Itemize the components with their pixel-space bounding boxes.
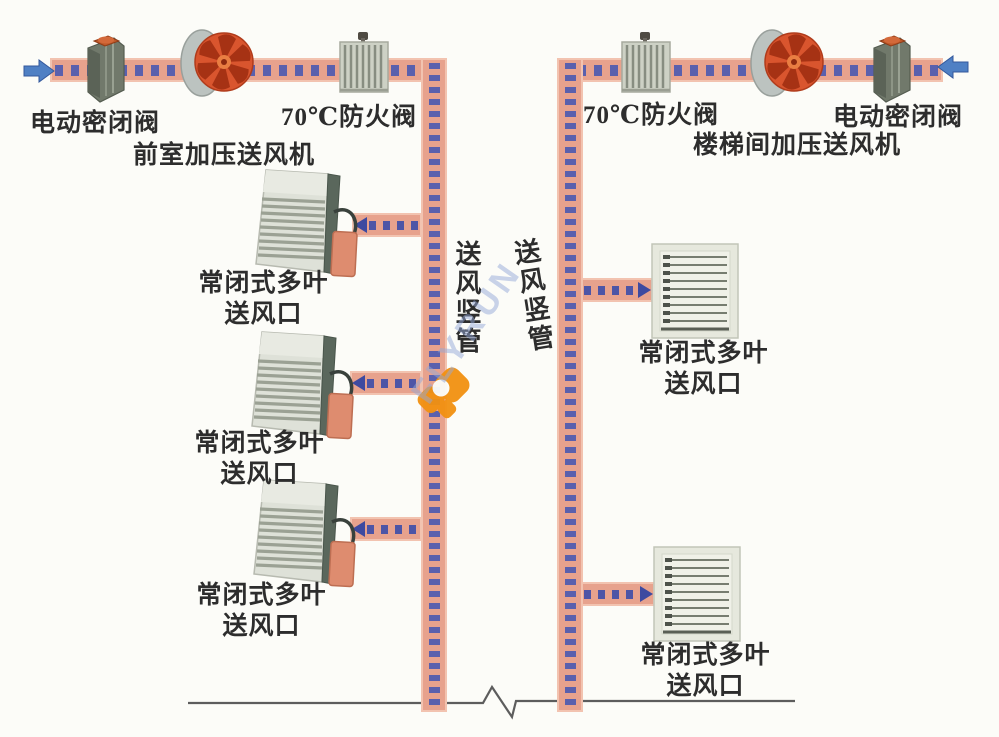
outlet-label-line2: 送风口 (176, 299, 351, 330)
fire-damper-label-left: 70℃防火阀 (281, 97, 417, 133)
outlet-label-line1: 常闭式多叶 (176, 268, 351, 299)
diagram-canvas: 电动密闭阀 70℃防火阀 前室加压送风机 70℃防火阀 电动密闭阀 楼梯间加压送… (0, 0, 999, 737)
branch-duct (581, 278, 653, 302)
flow-arrow-right-icon (638, 282, 651, 298)
airflow-dashes (369, 221, 419, 230)
ground-line (0, 680, 999, 737)
outlet-label: 常闭式多叶 送风口 (616, 338, 791, 400)
outlet-label-line2: 送风口 (616, 369, 791, 400)
outlet-label-line2: 送风口 (172, 459, 347, 490)
outlet-label-line1: 常闭式多叶 (618, 640, 793, 671)
outlet-label-line1: 常闭式多叶 (616, 338, 791, 369)
fan-label-right: 楼梯间加压送风机 (693, 125, 901, 161)
riser-duct-right (557, 58, 583, 712)
air-inlet-arrow-left-icon (22, 58, 56, 84)
outlet-label-line2: 送风口 (618, 671, 793, 702)
branch-duct (581, 582, 655, 606)
outlet-label: 常闭式多叶 送风口 (174, 580, 349, 642)
fire-damper-icon (336, 30, 392, 98)
electric-sealed-valve-icon (78, 32, 132, 106)
airflow-dashes (584, 286, 636, 295)
fan-label-left: 前室加压送风机 (133, 135, 315, 171)
valve-label-left: 电动密闭阀 (30, 103, 160, 139)
outlet-label-line1: 常闭式多叶 (172, 428, 347, 459)
air-inlet-arrow-right-icon (936, 54, 970, 80)
outlet-label: 常闭式多叶 送风口 (176, 268, 351, 330)
louver-outlet-front-view-icon (653, 546, 741, 642)
airflow-dashes (565, 63, 576, 707)
outlet-label: 常闭式多叶 送风口 (172, 428, 347, 490)
outlet-label: 常闭式多叶 送风口 (618, 640, 793, 702)
louver-outlet-side-view-icon (248, 476, 364, 596)
flow-arrow-right-icon (640, 586, 653, 602)
airflow-dashes (584, 590, 638, 599)
outlet-label-line2: 送风口 (174, 611, 349, 642)
fire-damper-icon (618, 30, 674, 98)
outlet-label-line1: 常闭式多叶 (174, 580, 349, 611)
axial-fan-icon (178, 26, 256, 100)
electric-sealed-valve-icon (864, 32, 918, 106)
airflow-dashes (367, 525, 419, 534)
louver-outlet-front-view-icon (651, 243, 739, 339)
axial-fan-icon (748, 26, 826, 100)
